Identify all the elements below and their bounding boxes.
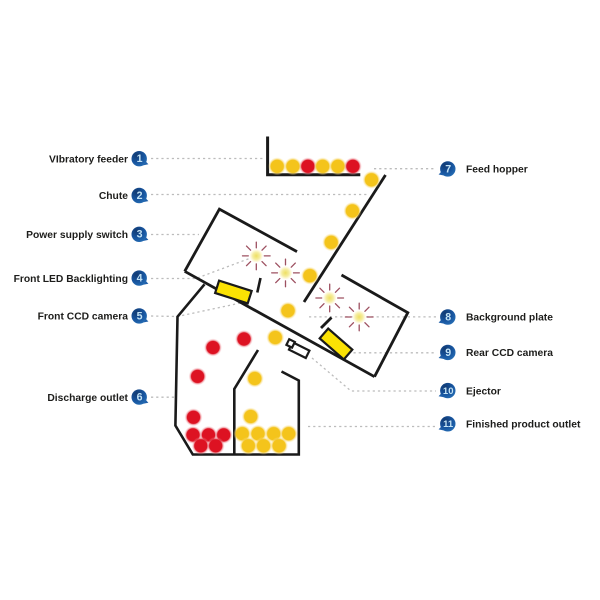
svg-text:10: 10	[443, 386, 454, 397]
svg-text:3: 3	[137, 229, 143, 241]
svg-text:Ejector: Ejector	[466, 386, 501, 397]
svg-text:VIbratory feeder: VIbratory feeder	[49, 154, 128, 165]
svg-text:Background plate: Background plate	[466, 313, 553, 324]
svg-text:9: 9	[445, 347, 451, 359]
svg-text:Discharge outlet: Discharge outlet	[47, 393, 128, 404]
svg-text:Finished product outlet: Finished product outlet	[466, 420, 581, 431]
svg-text:Chute: Chute	[99, 191, 128, 202]
svg-text:5: 5	[137, 310, 143, 322]
svg-text:2: 2	[137, 190, 143, 202]
svg-text:4: 4	[137, 273, 143, 285]
svg-text:8: 8	[445, 311, 451, 323]
svg-text:6: 6	[137, 392, 143, 404]
svg-text:11: 11	[443, 419, 454, 430]
svg-text:7: 7	[445, 163, 451, 175]
svg-text:Rear CCD camera: Rear CCD camera	[466, 348, 553, 359]
svg-text:Front CCD camera: Front CCD camera	[38, 312, 129, 323]
svg-text:Power supply switch: Power supply switch	[26, 230, 128, 241]
svg-text:Feed hopper: Feed hopper	[466, 165, 528, 176]
svg-text:1: 1	[137, 153, 143, 165]
svg-text:Front LED Backlighting: Front LED Backlighting	[14, 274, 128, 285]
